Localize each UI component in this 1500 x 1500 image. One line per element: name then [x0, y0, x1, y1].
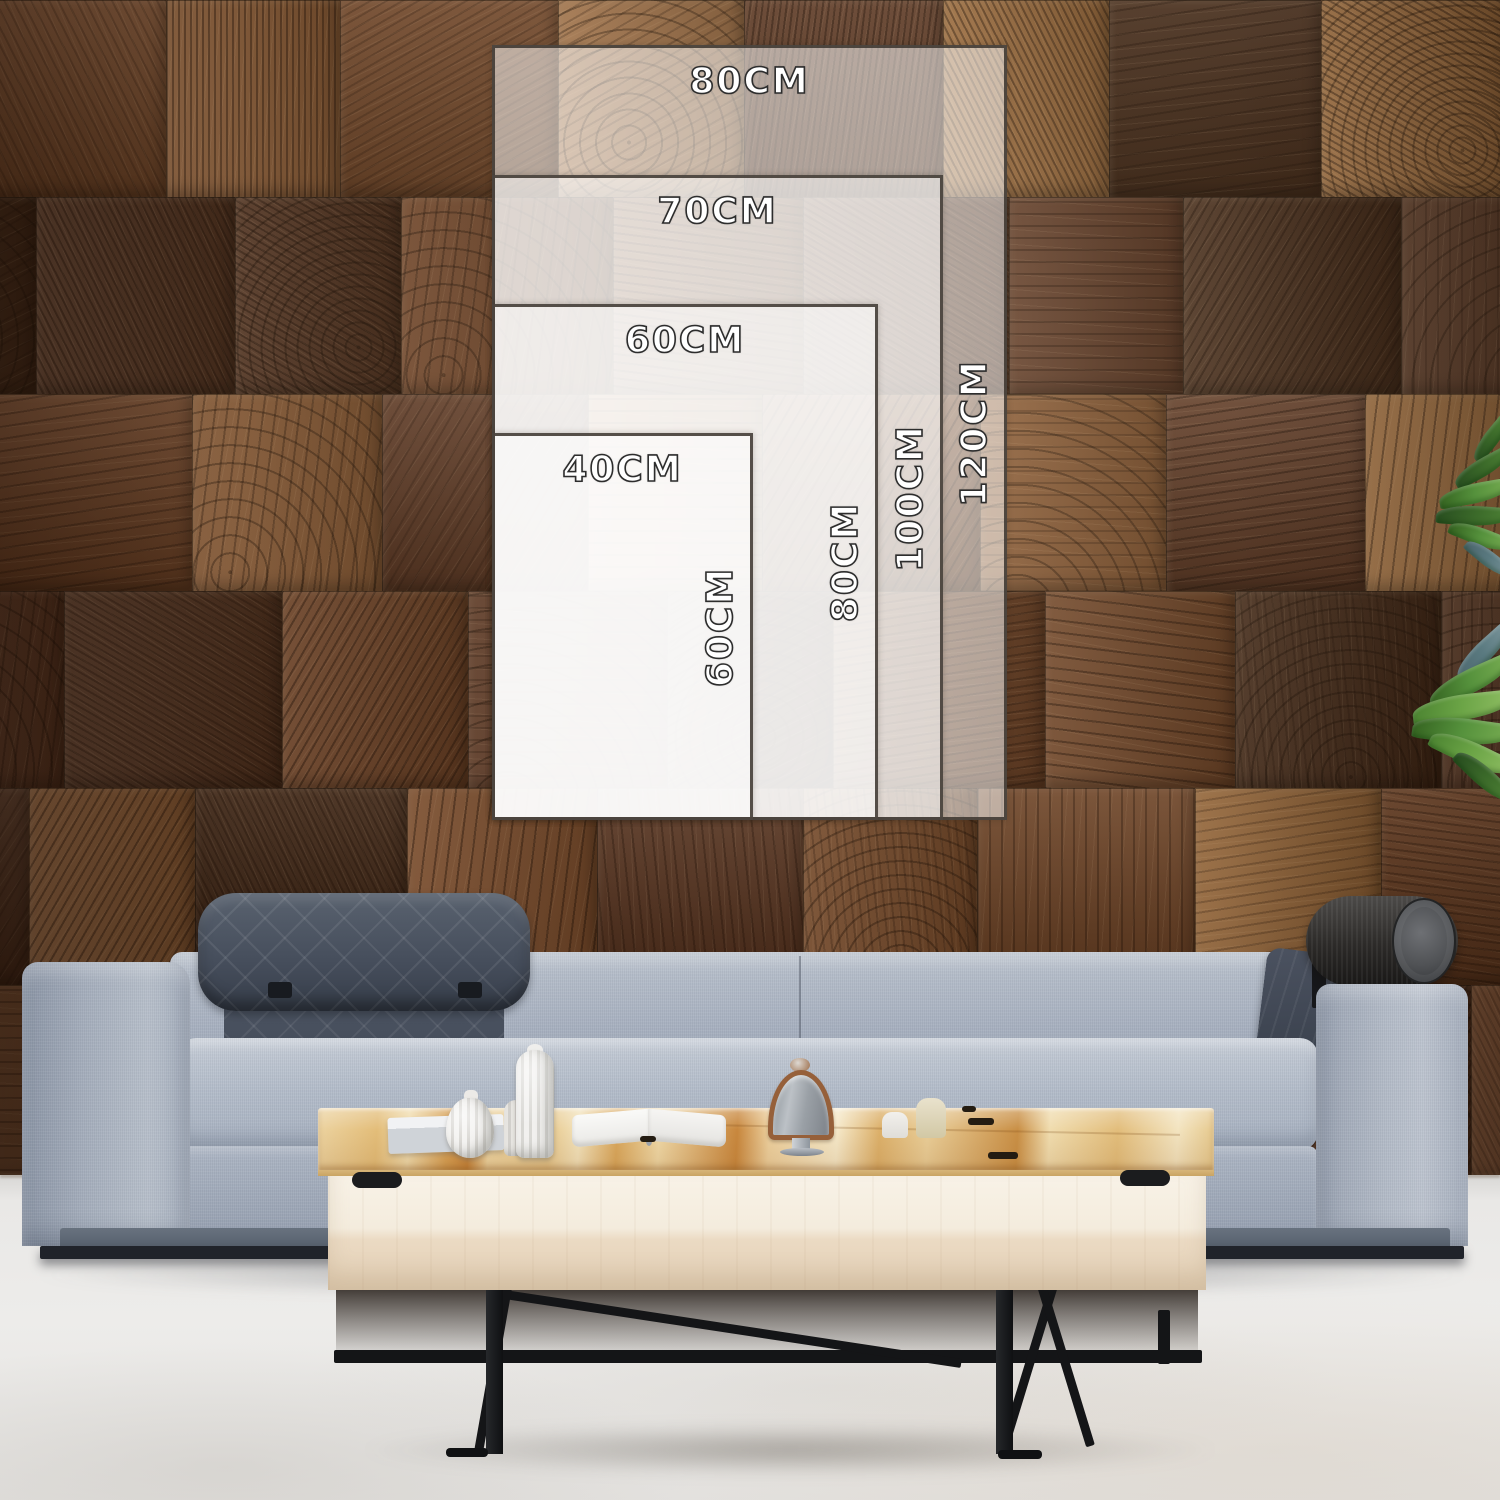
cloche-foot — [780, 1148, 824, 1156]
cream-candle — [916, 1098, 946, 1138]
tall-ribbed-vase — [516, 1050, 554, 1158]
drawer-handle — [1120, 1170, 1170, 1186]
table-leg-foot — [998, 1450, 1042, 1459]
drawer-handle — [352, 1172, 402, 1188]
table-leg-endpost — [1158, 1310, 1170, 1364]
butterfly-joint — [640, 1136, 656, 1142]
butterfly-joint — [968, 1118, 994, 1125]
ribbed-gourd-vase — [446, 1098, 494, 1158]
butterfly-joint — [988, 1152, 1018, 1159]
table-front-panel — [328, 1176, 1206, 1290]
bell-cloche — [768, 1070, 834, 1140]
open-book-left-page — [572, 1109, 650, 1148]
table-leg-stretcher — [334, 1350, 1202, 1363]
white-candle — [882, 1112, 908, 1138]
butterfly-joint — [962, 1106, 976, 1112]
table-leg-foot — [446, 1448, 488, 1457]
open-book-right-page — [648, 1109, 726, 1148]
table-under-shadow — [336, 1290, 1198, 1352]
coffee-table — [0, 0, 1500, 1500]
living-room-scene: 80CM 120CM 70CM 100CM 60CM 80CM 40CM 60C… — [0, 0, 1500, 1500]
